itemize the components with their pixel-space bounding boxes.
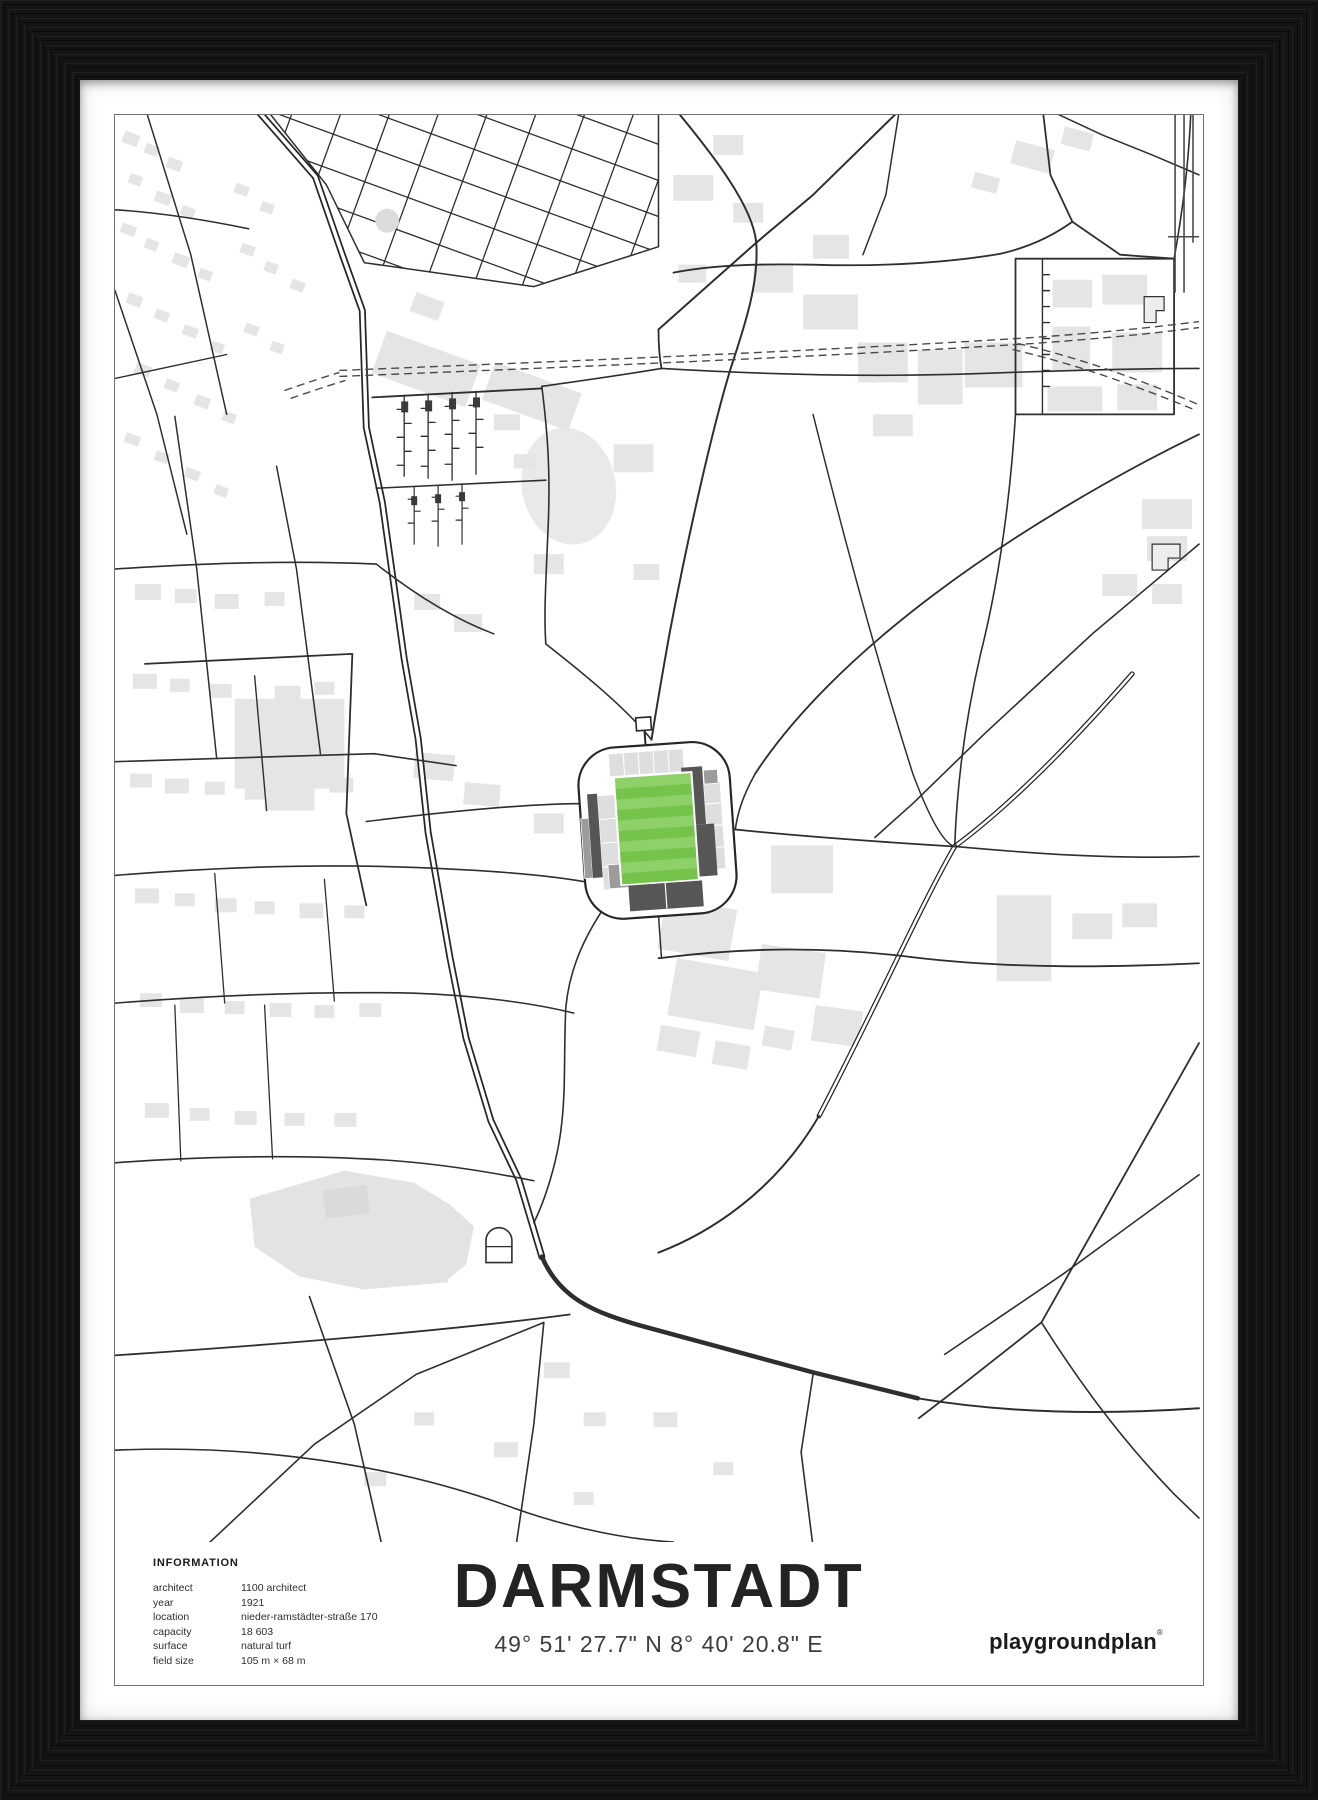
stadium-map — [115, 115, 1200, 1542]
frame-top — [0, 0, 1318, 80]
brand-registered-mark: ® — [1157, 1628, 1163, 1637]
frame-left — [0, 0, 80, 1800]
frame-right — [1238, 0, 1318, 1800]
brand-logo: playgroundplan® — [989, 1628, 1163, 1655]
poster-title: DARMSTADT — [115, 1551, 1203, 1622]
frame-bottom — [0, 1720, 1318, 1800]
poster-sheet: INFORMATION architect1100 architectyear1… — [114, 114, 1204, 1686]
mat: INFORMATION architect1100 architectyear1… — [80, 80, 1238, 1720]
brand-text: playgroundplan — [989, 1629, 1157, 1654]
